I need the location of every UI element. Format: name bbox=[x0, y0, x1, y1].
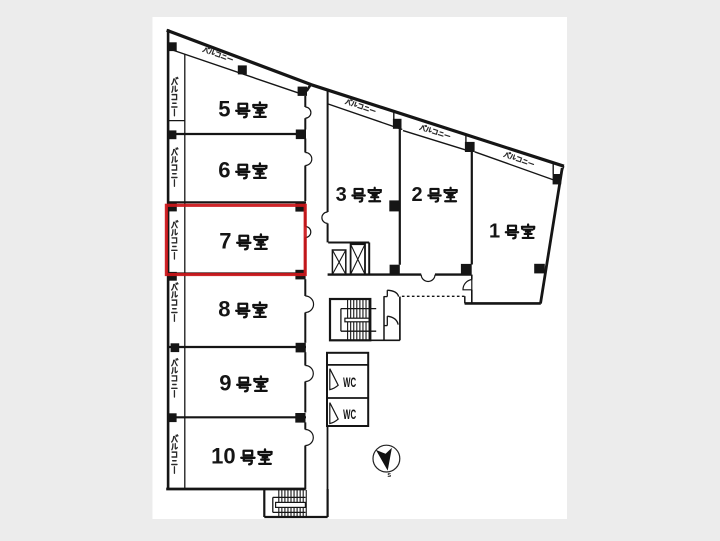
svg-text:6: 6 bbox=[218, 158, 230, 183]
svg-text:7: 7 bbox=[219, 229, 231, 254]
svg-text:10: 10 bbox=[211, 444, 235, 469]
svg-text:WC: WC bbox=[343, 407, 356, 422]
svg-text:S: S bbox=[387, 473, 391, 479]
svg-text:2: 2 bbox=[412, 184, 423, 206]
svg-text:3: 3 bbox=[336, 184, 347, 206]
svg-text:1: 1 bbox=[489, 221, 500, 243]
svg-text:WC: WC bbox=[343, 375, 356, 390]
svg-text:9: 9 bbox=[219, 371, 231, 396]
svg-text:8: 8 bbox=[218, 297, 230, 322]
svg-text:5: 5 bbox=[218, 97, 230, 122]
